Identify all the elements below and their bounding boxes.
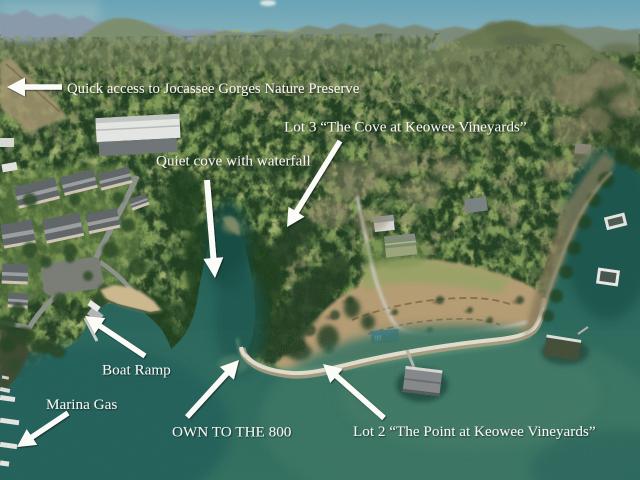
svg-text:Quiet cove with waterfall: Quiet cove with waterfall — [156, 153, 311, 170]
svg-text:Boat Ramp: Boat Ramp — [102, 362, 171, 379]
svg-text:Marina Gas: Marina Gas — [46, 396, 117, 413]
svg-text:Lot 2 “The Point at Keowee Vin: Lot 2 “The Point at Keowee Vineyards” — [353, 423, 596, 440]
svg-text:Quick access to Jocassee Gorge: Quick access to Jocassee Gorges Nature P… — [67, 81, 360, 97]
svg-text:OWN TO THE 800: OWN TO THE 800 — [172, 424, 292, 441]
svg-text:Lot 3 “The Cove at Keowee Vine: Lot 3 “The Cove at Keowee Vineyards” — [284, 119, 527, 136]
